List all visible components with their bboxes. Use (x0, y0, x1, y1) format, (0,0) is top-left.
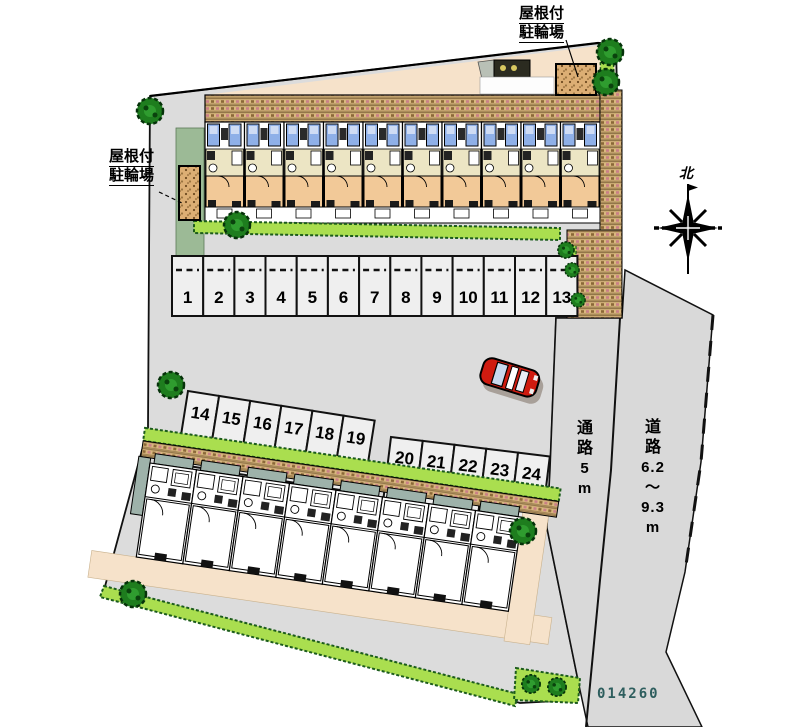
site-plan-canvas: 1 2 3 4 5 6 7 8 9 10 11 12 13 14 15 16 1… (0, 0, 800, 727)
bike-shed-top-label: 屋根付 駐輪場 (519, 5, 564, 43)
parking-stall: 4 (266, 256, 297, 316)
stall-number: 15 (221, 408, 243, 430)
bush-icon (558, 242, 574, 258)
parking-stall: 7 (359, 256, 390, 316)
parking-stall: 11 (484, 256, 515, 316)
bike-shed-top-label-line2: 駐輪場 (519, 24, 564, 43)
parking-stall: 8 (390, 256, 421, 316)
tree-icon (120, 581, 146, 607)
bike-shed-left-label: 屋根付 駐輪場 (109, 148, 154, 186)
stall-number: 19 (345, 427, 367, 449)
parking-stall: 6 (328, 256, 359, 316)
passage-width-label: 通 路 5 m (572, 419, 598, 499)
parking-row-north: 1 2 3 4 5 6 7 8 9 10 11 12 13 (172, 256, 577, 316)
parking-stall: 12 (515, 256, 546, 316)
tree-icon (224, 212, 250, 238)
stall-number: 14 (189, 403, 211, 425)
parking-stall: 9 (421, 256, 452, 316)
stall-number: 2 (214, 288, 223, 307)
stall-number: 8 (401, 288, 410, 307)
stall-number: 10 (459, 288, 478, 307)
bike-shed-left-label-line1: 屋根付 (109, 148, 154, 167)
brick-strip-north (205, 95, 600, 122)
stall-number: 24 (521, 463, 543, 484)
stall-number: 12 (521, 288, 540, 307)
parking-stall: 10 (453, 256, 484, 316)
tree-icon (158, 372, 184, 398)
bush-icon (565, 263, 579, 277)
north-mark: 北 (679, 165, 695, 181)
stall-number: 18 (314, 423, 336, 445)
compass-icon: 北 (654, 165, 722, 274)
parking-stall: 3 (234, 256, 265, 316)
stall-number: 13 (552, 288, 571, 307)
bike-shed-left-label-line2: 駐輪場 (109, 167, 154, 186)
tree-icon (597, 39, 623, 65)
tree-icon (510, 518, 536, 544)
stall-number: 7 (370, 288, 379, 307)
stall-number: 17 (283, 418, 305, 440)
parking-stall: 2 (203, 256, 234, 316)
bush-icon (548, 678, 566, 696)
stall-number: 11 (490, 288, 508, 307)
stall-number: 5 (308, 288, 317, 307)
stall-number: 22 (457, 456, 478, 477)
tree-icon (137, 98, 163, 124)
stall-number: 9 (432, 288, 441, 307)
bush-icon (571, 293, 585, 307)
stall-number: 6 (339, 288, 348, 307)
bike-shed-top-label-line1: 屋根付 (519, 5, 564, 24)
stall-number: 3 (245, 288, 254, 307)
bush-icon (522, 675, 540, 693)
stall-number: 1 (183, 288, 192, 307)
road-width-label: 道 路 6.2 ～ 9.3 m (634, 418, 672, 538)
tree-icon (593, 69, 619, 95)
stall-number: 23 (489, 459, 510, 480)
stall-number: 16 (252, 413, 274, 435)
plan-number: 014260 (597, 686, 660, 702)
stall-number: 4 (276, 288, 286, 307)
parking-stall: 1 (172, 256, 203, 316)
site-plan-drawing: 1 2 3 4 5 6 7 8 9 10 11 12 13 14 15 16 1… (0, 0, 800, 727)
parking-stall: 5 (297, 256, 328, 316)
